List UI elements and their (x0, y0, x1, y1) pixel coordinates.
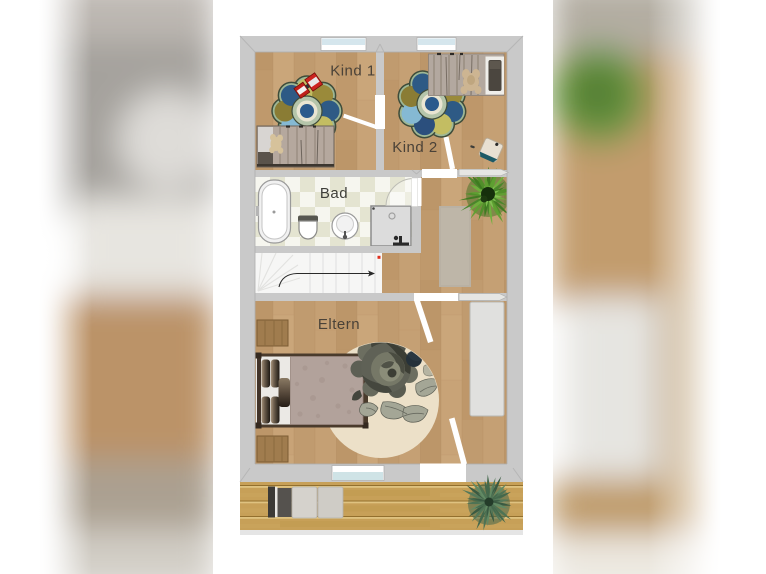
svg-text:Kind 2: Kind 2 (392, 139, 438, 156)
svg-text:Kind 1: Kind 1 (330, 63, 376, 80)
svg-text:Eltern: Eltern (318, 316, 360, 333)
svg-text:Bad: Bad (320, 185, 348, 202)
